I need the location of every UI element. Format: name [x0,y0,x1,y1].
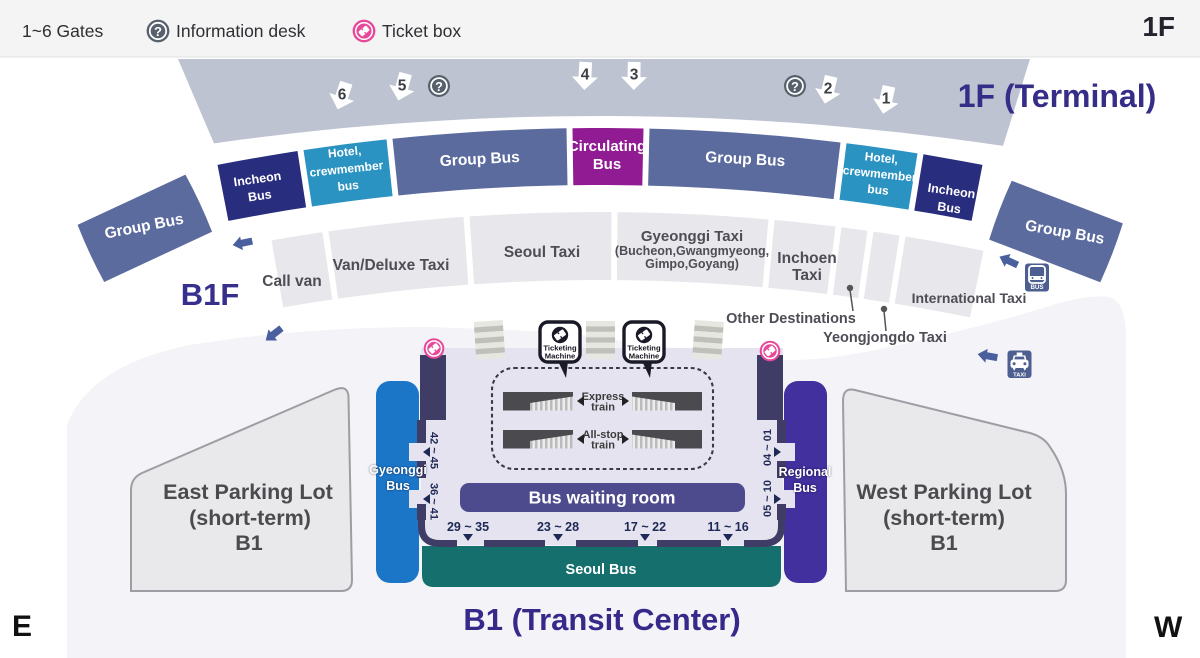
svg-text:1F: 1F [1142,11,1175,42]
svg-text:East Parking Lot: East Parking Lot [163,480,333,504]
svg-text:Gyeonggi: Gyeonggi [369,463,427,477]
svg-text:Seoul Taxi: Seoul Taxi [504,244,580,261]
svg-text:2: 2 [824,81,833,98]
svg-text:Van/Deluxe Taxi: Van/Deluxe Taxi [333,257,450,274]
svg-text:Machine: Machine [629,352,659,361]
svg-text:?: ? [154,24,162,39]
svg-text:train: train [591,440,615,452]
svg-text:Other Destinations: Other Destinations [726,311,856,327]
svg-text:42 ~ 45: 42 ~ 45 [428,432,440,469]
svg-text:04 ~ 01: 04 ~ 01 [762,429,774,466]
svg-text:train: train [591,402,615,414]
svg-text:(short-term): (short-term) [189,506,311,530]
svg-text:Bus waiting room: Bus waiting room [529,488,676,508]
svg-text:3: 3 [630,67,639,84]
svg-text:Regional: Regional [779,465,832,479]
svg-text:1F (Terminal): 1F (Terminal) [958,78,1157,114]
svg-text:W: W [1154,611,1183,644]
svg-text:36 ~ 41: 36 ~ 41 [428,483,440,520]
svg-text:Bus: Bus [386,479,410,493]
svg-text:05 ~ 10: 05 ~ 10 [762,480,774,517]
svg-text:bus: bus [867,182,890,198]
svg-text:Gimpo,Goyang): Gimpo,Goyang) [645,257,739,271]
svg-text:E: E [12,610,32,643]
svg-text:International Taxi: International Taxi [912,290,1027,306]
svg-text:TAXI: TAXI [1013,372,1026,378]
svg-text:(short-term): (short-term) [883,506,1005,530]
svg-text:23 ~ 28: 23 ~ 28 [537,520,579,534]
svg-text:5: 5 [398,78,407,95]
svg-text:(Bucheon,Gwangmyeong,: (Bucheon,Gwangmyeong, [615,244,769,258]
svg-text:Machine: Machine [545,352,575,361]
svg-text:B1 (Transit Center): B1 (Transit Center) [463,602,740,637]
svg-text:1~6 Gates: 1~6 Gates [22,21,103,41]
svg-text:Circulating: Circulating [568,138,646,155]
svg-text:Bus: Bus [793,481,817,495]
svg-text:6: 6 [338,87,347,104]
svg-text:Call van: Call van [262,273,321,290]
svg-text:BUS: BUS [1030,284,1043,291]
svg-text:11 ~ 16: 11 ~ 16 [707,520,748,534]
svg-text:Information desk: Information desk [176,21,306,41]
svg-text:?: ? [435,80,443,94]
svg-text:B1F: B1F [181,277,240,312]
svg-text:B1: B1 [235,531,263,555]
svg-text:Seoul Bus: Seoul Bus [566,562,637,578]
svg-text:17 ~ 22: 17 ~ 22 [624,520,666,534]
svg-text:?: ? [791,80,799,94]
svg-text:29 ~ 35: 29 ~ 35 [447,520,489,534]
svg-text:B1: B1 [930,531,958,555]
svg-text:Inchoen: Inchoen [777,250,836,267]
svg-text:1: 1 [882,91,891,108]
svg-text:Taxi: Taxi [792,267,822,284]
svg-text:Gyeonggi Taxi: Gyeonggi Taxi [641,228,743,245]
svg-text:Bus: Bus [593,156,621,173]
svg-text:West Parking Lot: West Parking Lot [856,480,1031,504]
svg-text:bus: bus [337,178,360,194]
svg-text:Yeongjongdo Taxi: Yeongjongdo Taxi [823,330,947,346]
svg-text:Ticket box: Ticket box [382,21,461,41]
svg-text:4: 4 [581,67,590,84]
